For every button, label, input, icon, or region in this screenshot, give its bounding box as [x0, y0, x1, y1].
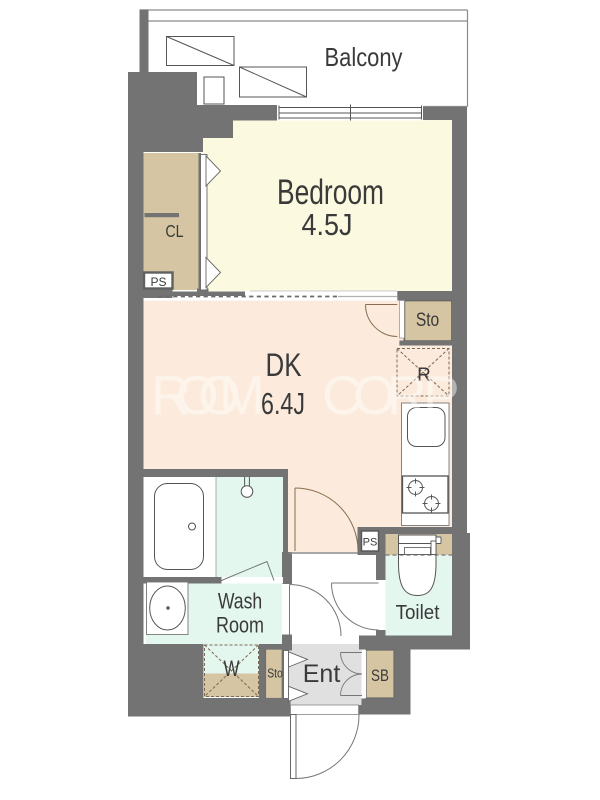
svg-text:Room: Room — [216, 614, 264, 638]
svg-text:4.5J: 4.5J — [302, 208, 353, 242]
svg-text:Wash: Wash — [218, 590, 262, 614]
svg-text:DK: DK — [265, 349, 302, 384]
svg-text:SB: SB — [371, 667, 389, 686]
svg-text:Sto: Sto — [267, 668, 283, 681]
svg-text:W: W — [224, 657, 240, 682]
svg-text:Bedroom: Bedroom — [277, 172, 384, 212]
svg-text:PS: PS — [150, 275, 166, 289]
svg-text:Ent: Ent — [303, 660, 341, 688]
svg-text:Toilet: Toilet — [396, 601, 440, 624]
svg-text:CL: CL — [165, 223, 183, 242]
svg-text:P: P — [423, 364, 460, 426]
svg-text:Balcony: Balcony — [325, 43, 403, 72]
svg-text:PS: PS — [363, 537, 378, 549]
svg-text:M: M — [219, 364, 265, 426]
svg-text:R: R — [387, 364, 427, 426]
svg-text:6.4J: 6.4J — [261, 386, 305, 421]
svg-text:Sto: Sto — [416, 309, 439, 331]
